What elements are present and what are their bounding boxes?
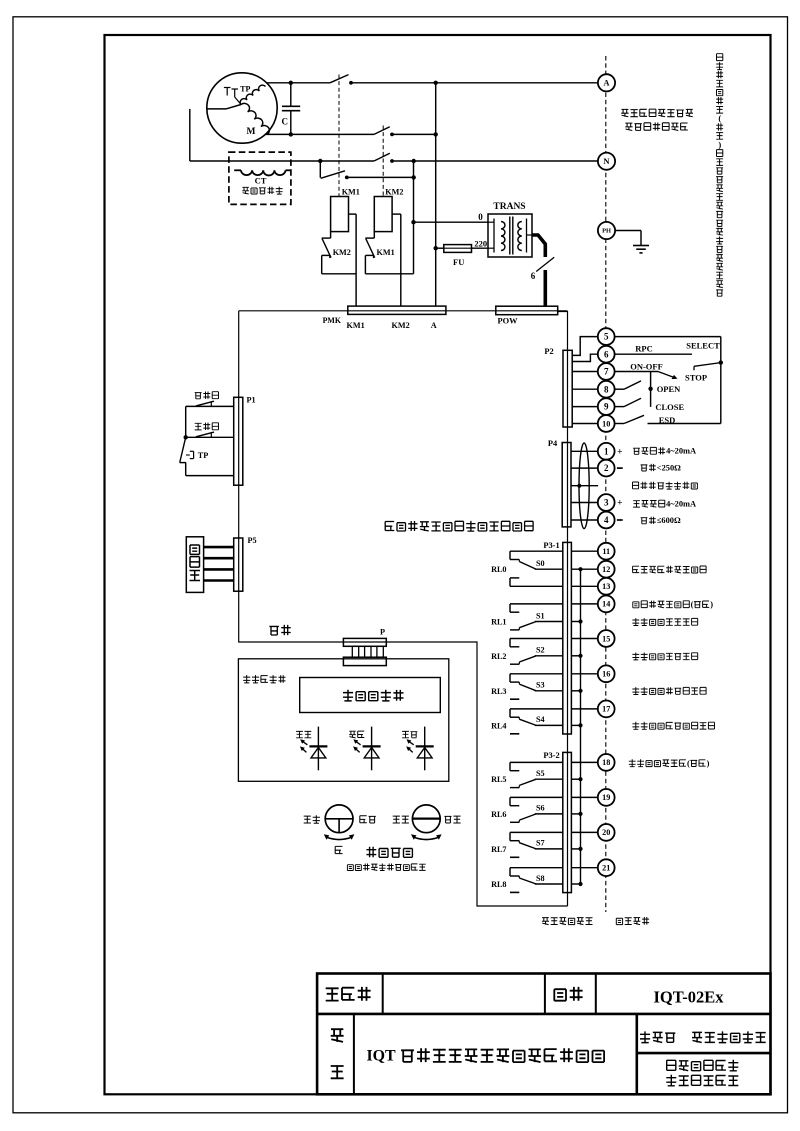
- svg-text:8: 8: [604, 384, 609, 394]
- svg-text:S8: S8: [536, 874, 545, 883]
- svg-text:KM2: KM2: [333, 248, 351, 257]
- svg-text:21: 21: [602, 863, 610, 872]
- svg-text:0: 0: [478, 212, 483, 222]
- svg-text:RL7: RL7: [491, 845, 506, 854]
- svg-text:S1: S1: [536, 611, 545, 620]
- svg-text:RL6: RL6: [491, 810, 506, 819]
- svg-text:P2: P2: [544, 347, 553, 356]
- svg-text:7: 7: [604, 367, 609, 377]
- svg-text:A: A: [603, 78, 610, 88]
- svg-text:6: 6: [531, 271, 536, 281]
- svg-text:S2: S2: [536, 646, 545, 655]
- svg-text:OPEN: OPEN: [657, 384, 681, 394]
- svg-text:4~20mA: 4~20mA: [666, 500, 696, 509]
- svg-text:RL2: RL2: [491, 652, 506, 661]
- svg-text:19: 19: [602, 793, 610, 802]
- svg-text:N: N: [603, 156, 610, 166]
- svg-text:14: 14: [602, 600, 610, 609]
- svg-text:17: 17: [602, 705, 610, 714]
- svg-text:4~20mA: 4~20mA: [666, 447, 696, 456]
- svg-text:KM1: KM1: [347, 321, 365, 330]
- svg-text:2: 2: [604, 463, 609, 473]
- svg-text:13: 13: [602, 582, 610, 591]
- svg-text:SELECT: SELECT: [686, 340, 720, 350]
- svg-text:KM2: KM2: [385, 187, 403, 196]
- svg-text:P3-1: P3-1: [543, 541, 559, 550]
- svg-text:+: +: [617, 499, 622, 509]
- svg-text:11: 11: [602, 547, 610, 556]
- svg-text:5: 5: [604, 332, 609, 342]
- svg-text:KM2: KM2: [392, 321, 410, 330]
- svg-text:S5: S5: [536, 769, 545, 778]
- svg-text:(: (: [687, 759, 690, 768]
- svg-text:P1: P1: [247, 396, 256, 405]
- svg-text:IQT: IQT: [367, 1048, 397, 1065]
- svg-text:S7: S7: [536, 839, 545, 848]
- svg-text:TRANS: TRANS: [493, 202, 525, 212]
- svg-text:10: 10: [602, 419, 610, 428]
- svg-text:3: 3: [604, 498, 609, 508]
- svg-text:S0: S0: [536, 559, 545, 568]
- svg-text:STOP: STOP: [685, 373, 707, 383]
- svg-text:S3: S3: [536, 681, 545, 690]
- svg-text:4: 4: [604, 515, 609, 525]
- svg-text:IQT-02Ex: IQT-02Ex: [654, 987, 725, 1006]
- svg-text:RL5: RL5: [491, 775, 506, 784]
- svg-text:(: (: [718, 113, 721, 123]
- svg-text:PMK: PMK: [323, 316, 342, 325]
- svg-text:POW: POW: [498, 317, 519, 326]
- svg-text:RL3: RL3: [491, 687, 506, 696]
- svg-text:P4: P4: [548, 439, 558, 448]
- svg-text:CLOSE: CLOSE: [655, 402, 684, 412]
- svg-text:A: A: [431, 321, 437, 330]
- svg-text:ESD: ESD: [659, 415, 676, 425]
- svg-text:ON-OFF: ON-OFF: [630, 362, 663, 372]
- svg-text:RPC: RPC: [635, 344, 652, 354]
- svg-text:KM1: KM1: [342, 187, 360, 196]
- svg-text:CT: CT: [255, 176, 267, 186]
- svg-text:<250Ω: <250Ω: [657, 463, 681, 472]
- svg-text:1: 1: [604, 446, 609, 456]
- svg-text:TP: TP: [198, 451, 208, 460]
- svg-text:220: 220: [474, 238, 487, 248]
- svg-text:KM1: KM1: [376, 248, 394, 257]
- svg-text:RL4: RL4: [491, 721, 506, 730]
- svg-text:P: P: [380, 628, 385, 637]
- svg-text:M: M: [247, 127, 256, 137]
- svg-text:): ): [710, 600, 713, 609]
- svg-text:C: C: [282, 117, 289, 127]
- svg-text:9: 9: [604, 402, 609, 412]
- svg-text:12: 12: [602, 565, 610, 574]
- svg-text:P3-2: P3-2: [543, 751, 559, 760]
- svg-text:TP: TP: [240, 85, 250, 94]
- svg-text:): ): [718, 139, 721, 149]
- svg-text:FU: FU: [453, 257, 464, 267]
- svg-text:16: 16: [602, 670, 610, 679]
- svg-text:(: (: [691, 600, 694, 609]
- svg-text:S4: S4: [536, 715, 545, 724]
- svg-text:S6: S6: [536, 804, 545, 813]
- svg-text:P5: P5: [248, 536, 257, 545]
- svg-text:+: +: [617, 447, 622, 457]
- svg-text:RL8: RL8: [491, 880, 506, 889]
- svg-text:): ): [707, 759, 710, 768]
- svg-text:≤600Ω: ≤600Ω: [657, 516, 681, 525]
- svg-text:PH: PH: [602, 228, 611, 235]
- svg-text:20: 20: [602, 828, 610, 837]
- svg-text:RL1: RL1: [491, 618, 506, 627]
- svg-text:18: 18: [602, 758, 610, 767]
- svg-text:15: 15: [602, 634, 610, 643]
- svg-text:RL0: RL0: [491, 565, 506, 574]
- svg-text:6: 6: [604, 349, 609, 359]
